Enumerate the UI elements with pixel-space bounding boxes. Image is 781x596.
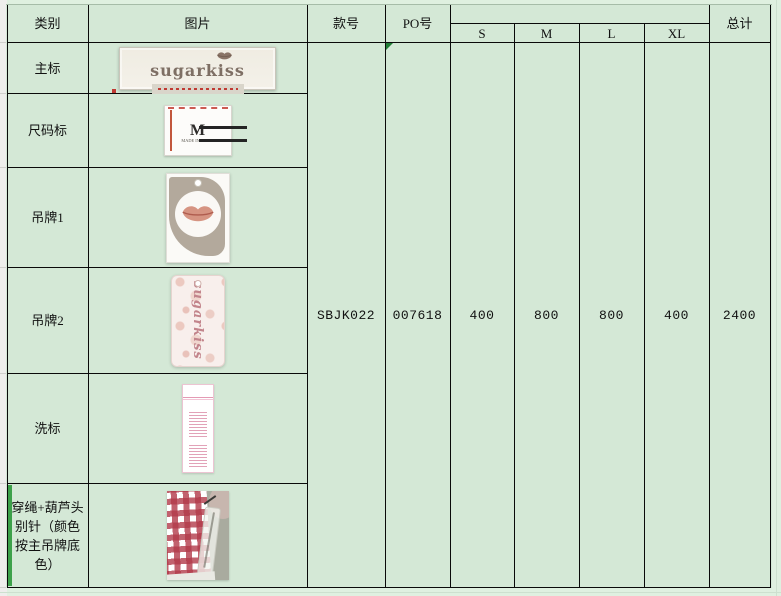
vertical-brand-text: sugarkiss — [188, 281, 207, 360]
pink-rule — [183, 397, 213, 398]
size-letter: M — [190, 123, 205, 138]
lips-icon — [216, 51, 233, 61]
header-style-no[interactable]: 款号 — [308, 5, 386, 43]
qty-l-cell[interactable]: 800 — [580, 43, 645, 588]
fold-mark — [199, 126, 247, 129]
po-no-cell[interactable]: 007618 — [386, 43, 451, 588]
style-no-cell[interactable]: SBJK022 — [308, 43, 386, 588]
category-cell-hangtag1[interactable]: 吊牌1 — [8, 168, 89, 268]
qty-m-cell[interactable]: 800 — [515, 43, 580, 588]
qty-total-cell[interactable]: 2400 — [710, 43, 771, 588]
size-label-image: M MADE IN CHINA — [164, 105, 232, 156]
category-cell-string-pin[interactable]: 穿绳+葫芦头别针（颜色按主吊牌底色） — [8, 484, 89, 588]
string — [203, 512, 215, 567]
red-stitch-line — [168, 107, 228, 109]
gridline-continuation — [776, 0, 777, 596]
qty-xl-cell[interactable]: 400 — [645, 43, 710, 588]
care-text-lines — [189, 412, 207, 439]
gridline-continuation — [0, 592, 781, 593]
green-accent-bar — [8, 485, 12, 586]
stitch-patch — [152, 84, 244, 94]
image-cell-string-pin[interactable] — [89, 484, 308, 588]
header-size-m[interactable]: M — [515, 24, 580, 43]
category-cell-hangtag2[interactable]: 吊牌2 — [8, 268, 89, 374]
white-circle — [175, 191, 221, 237]
category-cell-size-label[interactable]: 尺码标 — [8, 94, 89, 168]
header-size-s[interactable]: S — [451, 24, 515, 43]
tag-hole — [194, 179, 202, 187]
care-text-lines — [189, 445, 207, 467]
red-stitch-dots — [158, 88, 238, 90]
category-cell-wash-label[interactable]: 洗标 — [8, 374, 89, 484]
number-stored-as-text-indicator — [386, 43, 393, 50]
hangtag1-image — [166, 173, 230, 263]
image-cell-hangtag1[interactable] — [89, 168, 308, 268]
red-dot — [112, 89, 116, 93]
fold-mark — [199, 139, 247, 142]
category-label: 穿绳+葫芦头别针（颜色按主吊牌底色） — [11, 498, 85, 574]
string-pin-photo — [167, 491, 229, 580]
header-total[interactable]: 总计 — [710, 5, 771, 43]
image-cell-wash-label[interactable] — [89, 374, 308, 484]
header-image[interactable]: 图片 — [89, 5, 308, 43]
lips-kiss-icon — [180, 204, 216, 224]
header-size-l[interactable]: L — [580, 24, 645, 43]
tag-hole — [194, 280, 201, 287]
image-cell-size-label[interactable]: M MADE IN CHINA — [89, 94, 308, 168]
packing-label-table: 类别 图片 款号 PO号 S M L XL 总计 主标 尺码标 吊牌1 吊牌2 … — [6, 4, 772, 588]
header-sizes-group[interactable] — [451, 5, 710, 24]
qty-s-cell[interactable]: 400 — [451, 43, 515, 588]
wash-label-image — [182, 384, 214, 473]
image-cell-main-label[interactable]: sugarkiss — [89, 43, 308, 94]
hangtag2-image: sugarkiss — [171, 275, 225, 367]
po-no-value: 007618 — [393, 306, 443, 325]
main-brand-label-image: sugarkiss — [119, 47, 276, 90]
header-po-no[interactable]: PO号 — [386, 5, 451, 43]
red-edge-line — [170, 110, 172, 151]
header-category[interactable]: 类别 — [8, 5, 89, 43]
category-cell-main-label[interactable]: 主标 — [8, 43, 89, 94]
header-size-xl[interactable]: XL — [645, 24, 710, 43]
image-cell-hangtag2[interactable]: sugarkiss — [89, 268, 308, 374]
